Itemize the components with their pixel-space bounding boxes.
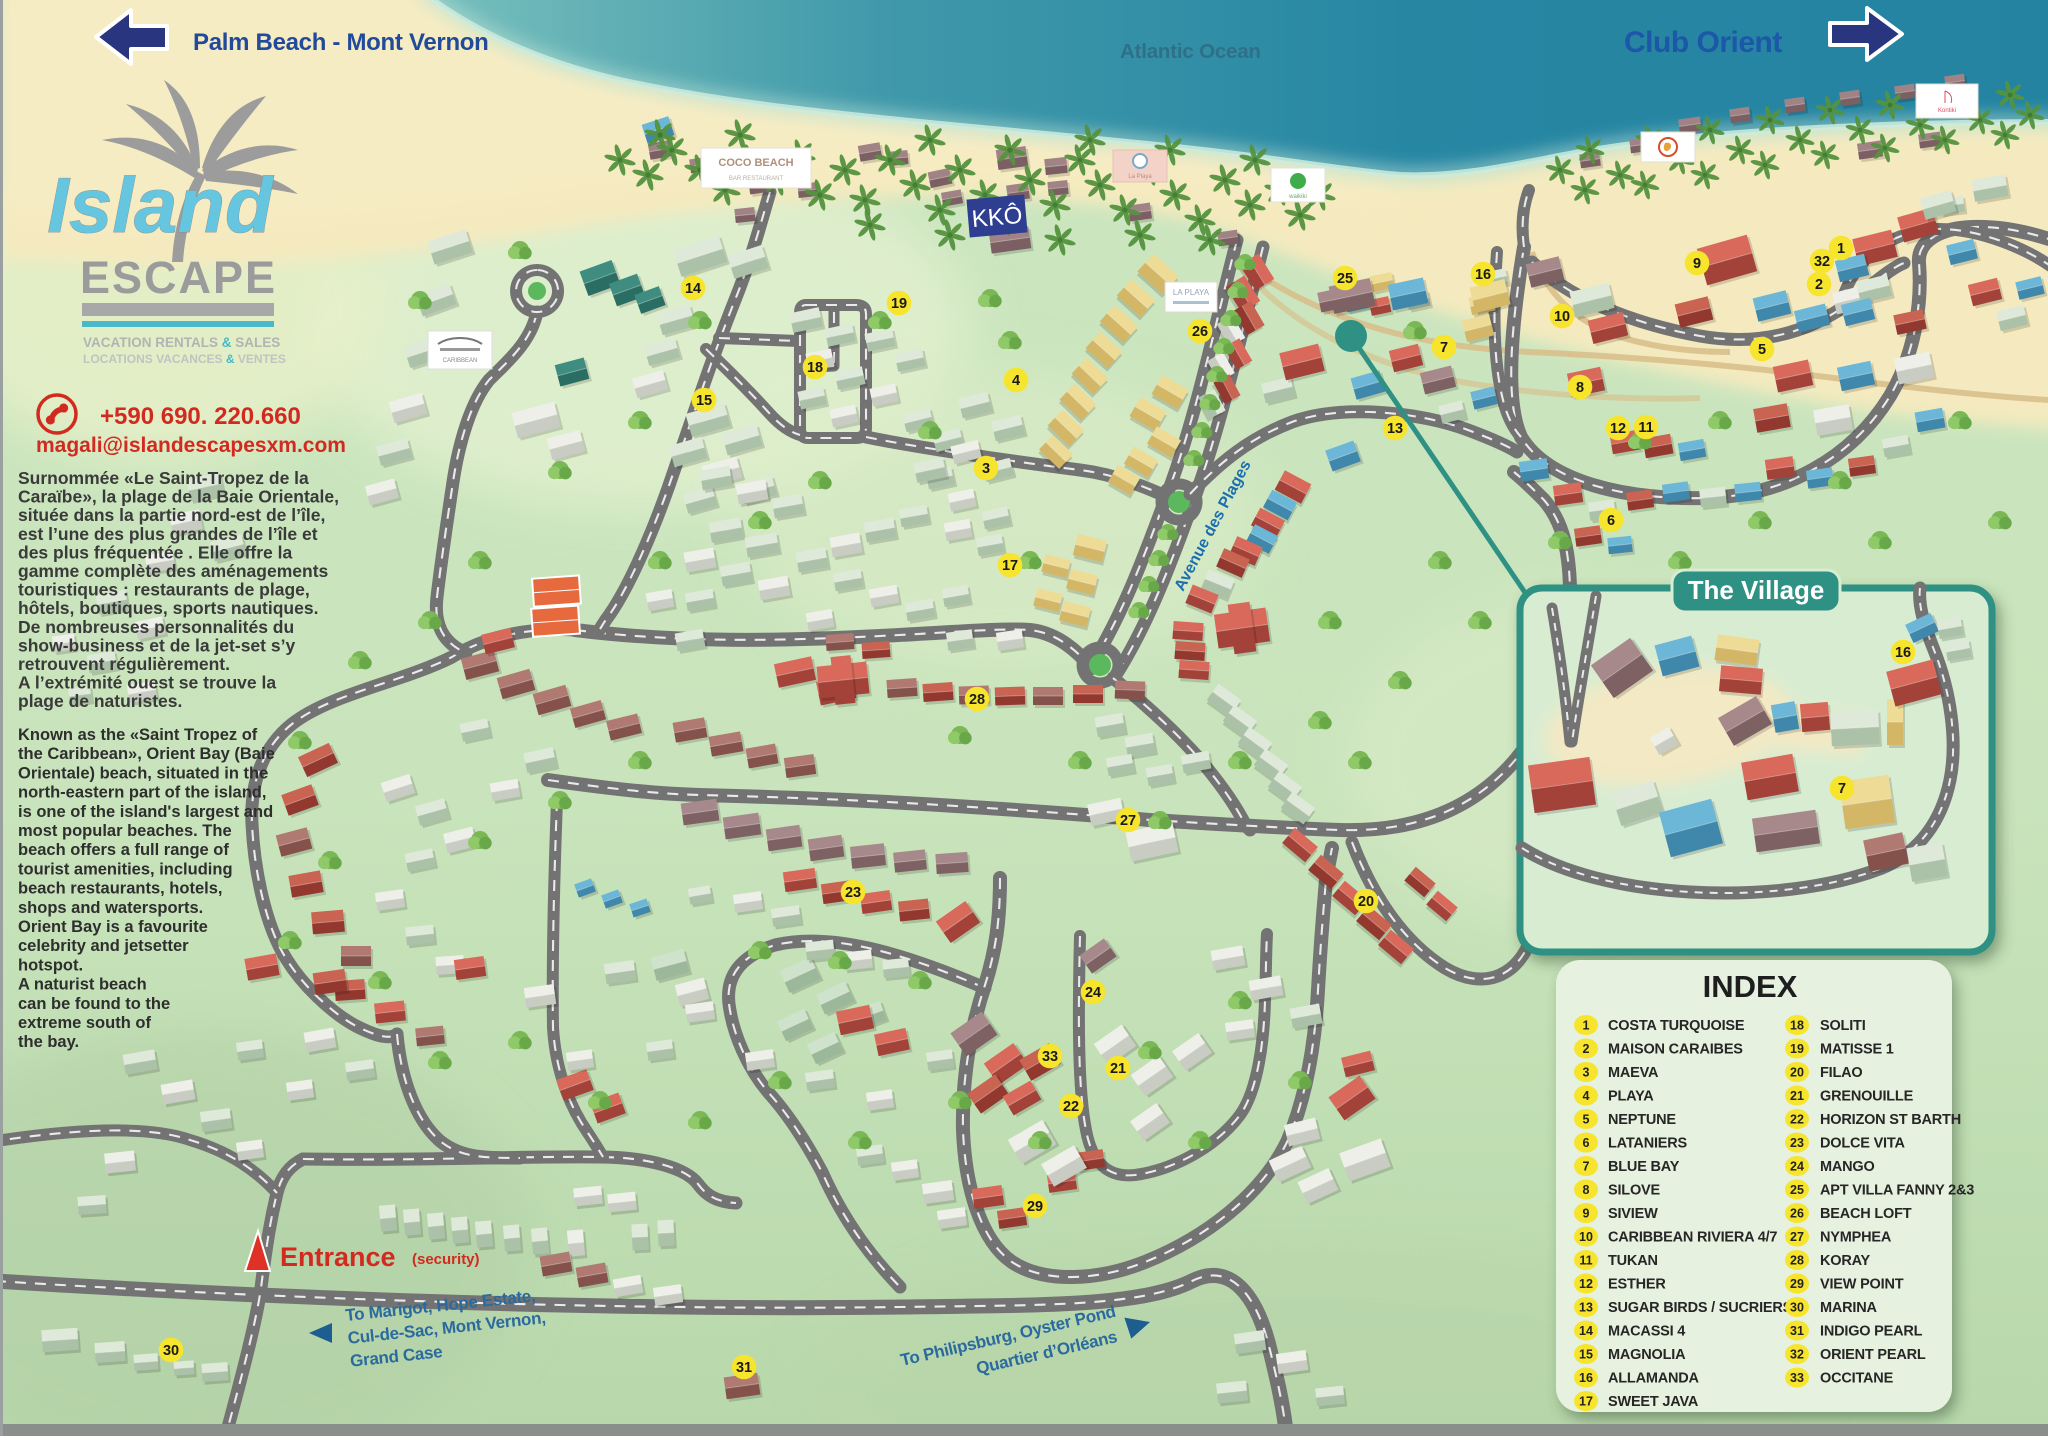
svg-text:12: 12 bbox=[1610, 421, 1626, 437]
svg-text:25: 25 bbox=[1790, 1183, 1804, 1197]
svg-text:Club Orient: Club Orient bbox=[1624, 26, 1782, 59]
svg-text:30: 30 bbox=[1790, 1301, 1804, 1315]
svg-text:18: 18 bbox=[807, 360, 823, 376]
svg-text:retrouvent régulièrement.: retrouvent régulièrement. bbox=[18, 654, 230, 674]
svg-text:COSTA TURQUOISE: COSTA TURQUOISE bbox=[1608, 1018, 1745, 1034]
svg-text:Island: Island bbox=[47, 161, 274, 249]
svg-text:MAEVA: MAEVA bbox=[1608, 1065, 1659, 1081]
svg-text:GRENOUILLE: GRENOUILLE bbox=[1820, 1089, 1914, 1105]
svg-text:MAISON CARAIBES: MAISON CARAIBES bbox=[1608, 1042, 1743, 1058]
svg-text:show-business et de la jet-set: show-business et de la jet-set s’y bbox=[18, 635, 295, 655]
svg-text:Surnommée «Le Saint-Tropez de: Surnommée «Le Saint-Tropez de la bbox=[18, 468, 309, 488]
svg-text:11: 11 bbox=[1638, 420, 1653, 436]
svg-text:18: 18 bbox=[1790, 1019, 1804, 1033]
svg-text:22: 22 bbox=[1063, 1099, 1079, 1115]
svg-text:FILAO: FILAO bbox=[1820, 1065, 1863, 1081]
svg-text:SILOVE: SILOVE bbox=[1608, 1183, 1661, 1199]
svg-text:VACATION RENTALS & SALES: VACATION RENTALS & SALES bbox=[83, 335, 280, 350]
svg-text:DOLCE VITA: DOLCE VITA bbox=[1820, 1136, 1905, 1152]
svg-text:15: 15 bbox=[696, 393, 712, 409]
svg-text:SIVIEW: SIVIEW bbox=[1608, 1206, 1658, 1222]
svg-text:hôtels, boutiques, sports naut: hôtels, boutiques, sports nautiques. bbox=[18, 598, 318, 618]
svg-text:15: 15 bbox=[1579, 1348, 1593, 1362]
svg-text:13: 13 bbox=[1579, 1301, 1593, 1315]
svg-text:24: 24 bbox=[1790, 1160, 1804, 1174]
svg-text:touristiques : restaurants de: touristiques : restaurants de plage, bbox=[18, 580, 310, 600]
svg-text:VIEW POINT: VIEW POINT bbox=[1820, 1277, 1904, 1293]
svg-text:3: 3 bbox=[982, 461, 990, 477]
svg-text:Kontiki: Kontiki bbox=[1938, 108, 1956, 114]
svg-text:24: 24 bbox=[1085, 985, 1101, 1001]
svg-text:CARIBBEAN: CARIBBEAN bbox=[443, 358, 478, 364]
svg-text:4: 4 bbox=[1012, 373, 1020, 389]
svg-text:the bay.: the bay. bbox=[18, 1033, 79, 1051]
svg-text:magali@islandescapesxm.com: magali@islandescapesxm.com bbox=[36, 434, 346, 457]
svg-text:beach offers a full range of: beach offers a full range of bbox=[18, 841, 229, 859]
svg-text:17: 17 bbox=[1002, 558, 1018, 574]
svg-text:10: 10 bbox=[1579, 1230, 1593, 1244]
svg-text:LATANIERS: LATANIERS bbox=[1608, 1136, 1688, 1152]
svg-text:22: 22 bbox=[1790, 1113, 1804, 1127]
svg-text:north-eastern part of the isla: north-eastern part of the island, bbox=[18, 784, 266, 802]
svg-text:29: 29 bbox=[1027, 1199, 1043, 1215]
svg-text:32: 32 bbox=[1790, 1348, 1804, 1362]
svg-text:27: 27 bbox=[1790, 1230, 1804, 1244]
svg-text:Caraïbe», la plage de la Baie: Caraïbe», la plage de la Baie Orientale, bbox=[18, 487, 339, 507]
svg-text:SWEET JAVA: SWEET JAVA bbox=[1608, 1394, 1699, 1410]
svg-text:7: 7 bbox=[1838, 781, 1846, 797]
svg-text:Entrance: Entrance bbox=[280, 1242, 396, 1272]
svg-text:6: 6 bbox=[1583, 1136, 1590, 1150]
svg-text:23: 23 bbox=[1790, 1136, 1804, 1150]
svg-text:9: 9 bbox=[1583, 1207, 1590, 1221]
svg-text:3: 3 bbox=[1583, 1066, 1590, 1080]
svg-text:KKÔ: KKÔ bbox=[971, 201, 1024, 233]
svg-text:shops and watersports.: shops and watersports. bbox=[18, 899, 203, 917]
svg-text:is one of the island's largest: is one of the island's largest and bbox=[18, 803, 273, 821]
svg-text:1: 1 bbox=[1583, 1019, 1590, 1033]
svg-text:A l’extrémité ouest se trouve: A l’extrémité ouest se trouve la bbox=[18, 673, 276, 693]
svg-text:des plus fréquentée . Elle off: des plus fréquentée . Elle offre la bbox=[18, 542, 293, 562]
svg-text:MAGNOLIA: MAGNOLIA bbox=[1608, 1347, 1686, 1363]
svg-text:6: 6 bbox=[1607, 513, 1615, 529]
svg-text:BAR RESTAURANT: BAR RESTAURANT bbox=[729, 176, 784, 182]
svg-text:31: 31 bbox=[1790, 1324, 1804, 1338]
svg-text:plage de naturistes.: plage de naturistes. bbox=[18, 691, 182, 711]
svg-text:BLUE BAY: BLUE BAY bbox=[1608, 1159, 1680, 1175]
svg-text:beach restaurants, hotels,: beach restaurants, hotels, bbox=[18, 880, 223, 898]
svg-text:29: 29 bbox=[1790, 1277, 1804, 1291]
svg-text:(security): (security) bbox=[412, 1251, 480, 1268]
svg-text:25: 25 bbox=[1337, 271, 1353, 287]
svg-text:21: 21 bbox=[1790, 1089, 1804, 1103]
svg-text:Known as the «Saint Tropez of: Known as the «Saint Tropez of bbox=[18, 726, 258, 744]
svg-text:APT VILLA FANNY 2&3: APT VILLA FANNY 2&3 bbox=[1820, 1183, 1974, 1199]
svg-text:26: 26 bbox=[1790, 1207, 1804, 1221]
svg-text:can be found to the: can be found to the bbox=[18, 995, 170, 1013]
svg-text:NYMPHEA: NYMPHEA bbox=[1820, 1230, 1892, 1246]
svg-text:INDIGO PEARL: INDIGO PEARL bbox=[1820, 1324, 1923, 1340]
svg-text:MACASSI 4: MACASSI 4 bbox=[1608, 1324, 1685, 1340]
svg-text:OCCITANE: OCCITANE bbox=[1820, 1371, 1894, 1387]
svg-text:2: 2 bbox=[1815, 277, 1823, 293]
svg-text:extreme south of: extreme south of bbox=[18, 1014, 151, 1032]
svg-text:COCO BEACH: COCO BEACH bbox=[718, 157, 793, 169]
svg-text:NEPTUNE: NEPTUNE bbox=[1608, 1112, 1676, 1128]
svg-text:est l’une des plus grandes de: est l’une des plus grandes de l’île et bbox=[18, 524, 318, 544]
svg-text:KORAY: KORAY bbox=[1820, 1253, 1871, 1269]
svg-text:Orient Bay is a favourite: Orient Bay is a favourite bbox=[18, 918, 208, 936]
svg-text:30: 30 bbox=[163, 1343, 179, 1359]
svg-text:19: 19 bbox=[1790, 1042, 1804, 1056]
svg-text:4: 4 bbox=[1583, 1089, 1590, 1103]
svg-text:Palm Beach - Mont Vernon: Palm Beach - Mont Vernon bbox=[193, 29, 489, 56]
svg-text:the Caribbean», Orient Bay (Ba: the Caribbean», Orient Bay (Baie bbox=[18, 745, 275, 763]
svg-text:23: 23 bbox=[845, 885, 861, 901]
svg-text:27: 27 bbox=[1120, 813, 1136, 829]
svg-text:28: 28 bbox=[969, 692, 985, 708]
svg-text:31: 31 bbox=[736, 1360, 752, 1376]
svg-text:16: 16 bbox=[1475, 267, 1491, 283]
svg-text:10: 10 bbox=[1554, 309, 1570, 325]
svg-text:tourist amenities, including: tourist amenities, including bbox=[18, 860, 233, 878]
svg-text:14: 14 bbox=[1579, 1324, 1593, 1338]
svg-text:SUGAR BIRDS / SUCRIERS: SUGAR BIRDS / SUCRIERS bbox=[1608, 1300, 1793, 1316]
svg-text:MATISSE 1: MATISSE 1 bbox=[1820, 1042, 1894, 1058]
svg-text:13: 13 bbox=[1387, 421, 1403, 437]
svg-text:The Village: The Village bbox=[1688, 575, 1825, 605]
svg-text:INDEX: INDEX bbox=[1703, 969, 1798, 1004]
svg-text:26: 26 bbox=[1192, 324, 1208, 340]
svg-text:waikiki: waikiki bbox=[1288, 194, 1307, 200]
svg-text:BEACH LOFT: BEACH LOFT bbox=[1820, 1206, 1912, 1222]
svg-text:7: 7 bbox=[1440, 340, 1448, 356]
svg-text:ORIENT PEARL: ORIENT PEARL bbox=[1820, 1347, 1926, 1363]
svg-text:8: 8 bbox=[1583, 1183, 1590, 1197]
svg-text:gamme complète des aménagement: gamme complète des aménagements bbox=[18, 561, 329, 581]
svg-text:De nombreuses personnalités du: De nombreuses personnalités du bbox=[18, 617, 294, 637]
svg-text:A naturist beach: A naturist beach bbox=[18, 976, 147, 994]
svg-text:ESCAPE: ESCAPE bbox=[80, 252, 277, 303]
svg-text:celebrity and jetsetter: celebrity and jetsetter bbox=[18, 937, 189, 955]
svg-text:située dans la partie nord-est: située dans la partie nord-est de l’île, bbox=[18, 505, 325, 525]
svg-text:16: 16 bbox=[1579, 1371, 1593, 1385]
svg-text:2: 2 bbox=[1583, 1042, 1590, 1056]
svg-text:20: 20 bbox=[1790, 1066, 1804, 1080]
svg-text:HORIZON ST BARTH: HORIZON ST BARTH bbox=[1820, 1112, 1961, 1128]
svg-text:20: 20 bbox=[1358, 894, 1374, 910]
svg-text:CARIBBEAN RIVIERA 4/7: CARIBBEAN RIVIERA 4/7 bbox=[1608, 1230, 1777, 1246]
svg-text:hotspot.: hotspot. bbox=[18, 956, 83, 974]
svg-text:12: 12 bbox=[1579, 1277, 1593, 1291]
svg-text:33: 33 bbox=[1790, 1371, 1804, 1385]
svg-text:La Playa: La Playa bbox=[1128, 174, 1152, 180]
svg-text:5: 5 bbox=[1583, 1113, 1590, 1127]
svg-text:9: 9 bbox=[1693, 256, 1701, 272]
svg-text:ESTHER: ESTHER bbox=[1608, 1277, 1666, 1293]
svg-text:21: 21 bbox=[1110, 1061, 1126, 1077]
svg-text:19: 19 bbox=[891, 296, 907, 312]
svg-text:8: 8 bbox=[1576, 380, 1584, 396]
svg-text:5: 5 bbox=[1758, 342, 1766, 358]
svg-text:Orientale) beach, situated in: Orientale) beach, situated in the bbox=[18, 764, 268, 782]
svg-text:32: 32 bbox=[1814, 254, 1830, 270]
svg-text:+590 690. 220.660: +590 690. 220.660 bbox=[100, 403, 301, 430]
svg-text:LOCATIONS VACANCES & VENTES: LOCATIONS VACANCES & VENTES bbox=[83, 352, 286, 366]
svg-text:most popular beaches. The: most popular beaches. The bbox=[18, 822, 232, 840]
svg-text:14: 14 bbox=[685, 281, 701, 297]
svg-text:33: 33 bbox=[1042, 1049, 1058, 1065]
svg-text:11: 11 bbox=[1579, 1254, 1592, 1268]
svg-text:7: 7 bbox=[1583, 1160, 1590, 1174]
svg-text:LA PLAYA: LA PLAYA bbox=[1173, 288, 1210, 297]
svg-text:ALLAMANDA: ALLAMANDA bbox=[1608, 1371, 1700, 1387]
svg-text:28: 28 bbox=[1790, 1254, 1804, 1268]
svg-text:PLAYA: PLAYA bbox=[1608, 1089, 1654, 1105]
svg-text:16: 16 bbox=[1895, 645, 1911, 661]
svg-text:SOLITI: SOLITI bbox=[1820, 1018, 1866, 1034]
svg-text:MANGO: MANGO bbox=[1820, 1159, 1875, 1175]
svg-text:1: 1 bbox=[1837, 241, 1845, 257]
svg-text:TUKAN: TUKAN bbox=[1608, 1253, 1658, 1269]
svg-text:Atlantic Ocean: Atlantic Ocean bbox=[1120, 40, 1261, 63]
svg-text:17: 17 bbox=[1579, 1395, 1593, 1409]
svg-text:MARINA: MARINA bbox=[1820, 1300, 1878, 1316]
